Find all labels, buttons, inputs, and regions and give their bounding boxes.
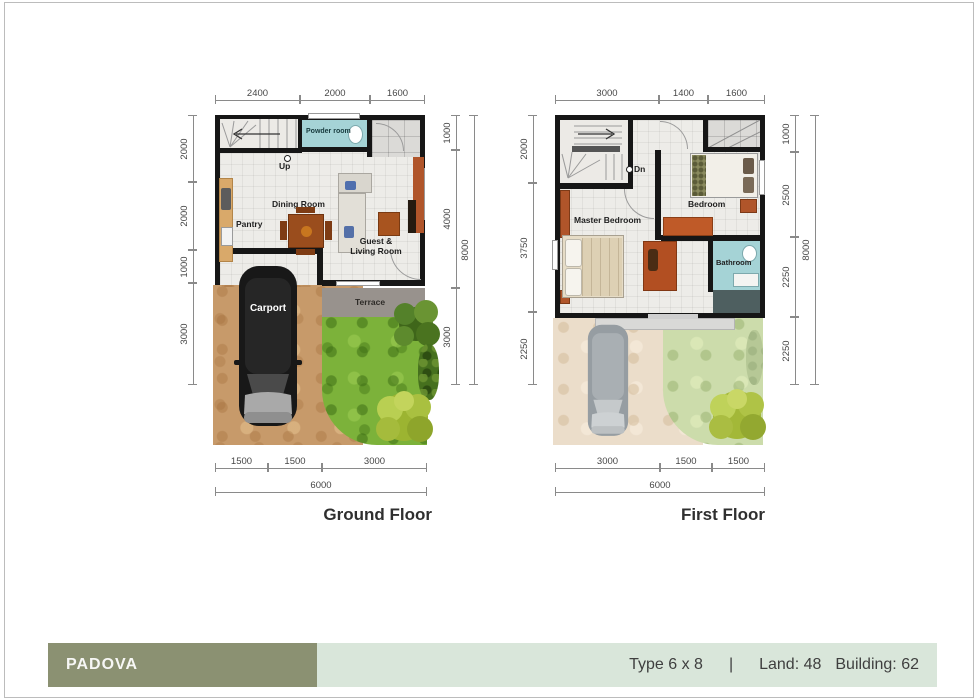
ff-wall-balcony-bottom (703, 147, 760, 152)
dim-value: 1000 (442, 111, 454, 155)
gf-dim-right-1: 4000 (444, 150, 457, 288)
gf-pantry-counter (219, 178, 233, 262)
dim-value: 8000 (801, 228, 813, 272)
project-name-plate: PADOVA (48, 643, 317, 687)
gf-centerpiece (301, 226, 312, 237)
dim-value: 2000 (179, 194, 191, 238)
dim-value: 2250 (519, 327, 531, 371)
gf-dim-bottom-1: 1500 (268, 456, 322, 469)
ff-master-pillow-1 (565, 239, 582, 267)
dim-value: 3000 (442, 315, 454, 359)
gf-dim-left-1: 2000 (181, 182, 194, 250)
ff-balcony-hatch (708, 120, 760, 148)
dim-value: 1500 (728, 456, 749, 467)
ff-wall-balcony-left (703, 115, 708, 151)
gf-chair-bottom (296, 249, 315, 255)
ff-dim-right-0: 1000 (783, 115, 796, 152)
gf-carport-label: Carport (240, 303, 296, 314)
gf-tv (408, 200, 416, 233)
dim-value: 2400 (247, 88, 268, 99)
dim-value: 1000 (179, 245, 191, 289)
dim-value: 1600 (387, 88, 408, 99)
gf-dim-right-0: 1000 (444, 115, 457, 150)
gf-wall-porch-left (367, 115, 372, 157)
ff-dim-top-0: 3000 (555, 88, 659, 101)
ff-dim-bottom-total: 6000 (555, 480, 765, 493)
dim-value: 1000 (781, 112, 793, 156)
ff-dim-right-total: 8000 (803, 115, 816, 385)
ff-bush-large (705, 385, 769, 445)
gf-dim-top-2: 1600 (370, 88, 425, 101)
gf-car-top-view (233, 262, 303, 432)
ff-vanity (733, 273, 759, 287)
ff-dim-right-3: 2250 (783, 317, 796, 385)
dim-value: 1500 (231, 456, 252, 467)
gf-dim-bottom-total: 6000 (215, 480, 427, 493)
ff-car-top-view-faded (575, 322, 641, 440)
gf-dim-bottom-0: 1500 (215, 456, 268, 469)
ff-dim-top-1: 1400 (659, 88, 708, 101)
floor-plan-sheet: Terrace Powder room (0, 0, 980, 700)
ff-wardrobe (560, 190, 570, 238)
gf-up-label: Up (279, 161, 290, 171)
gf-bush-mid (392, 294, 440, 352)
gf-window-top (308, 113, 360, 119)
project-name: PADOVA (48, 656, 138, 674)
ff-wall-hall (655, 150, 661, 240)
building-label: Building: 62 (835, 656, 919, 674)
dim-value: 4000 (442, 197, 454, 241)
dim-value: 2000 (519, 127, 531, 171)
ff-bathroom-label: Bathroom (716, 258, 751, 267)
dim-value: 3000 (179, 312, 191, 356)
ff-porch-step (648, 314, 698, 319)
ff-dim-bottom-2: 1500 (712, 456, 765, 469)
gf-sink (221, 227, 233, 246)
ff-bed-headboard (692, 155, 706, 196)
ff-master-pillow-2 (565, 268, 582, 296)
gf-pantry-label: Pantry (236, 219, 262, 229)
gf-wall-powder (298, 147, 370, 152)
ff-bed-pillow-1 (743, 158, 754, 174)
gf-dim-left-3: 3000 (181, 283, 194, 385)
dim-value: 6000 (310, 480, 331, 491)
gf-wall-powder-left (298, 115, 302, 152)
gf-dim-top-1: 2000 (300, 88, 370, 101)
ff-master-duvet (582, 238, 622, 296)
gf-terrace-label: Terrace (355, 297, 385, 307)
ff-window-right (759, 160, 765, 195)
gf-dim-left-2: 1000 (181, 250, 194, 283)
ff-dim-bottom-0: 3000 (555, 456, 660, 469)
gf-chair-left (280, 221, 287, 240)
ff-dim-top-2: 1600 (708, 88, 765, 101)
ff-dn-label: Dn (634, 164, 645, 174)
dim-value: 1400 (673, 88, 694, 99)
ff-stairs-graphic (560, 120, 628, 183)
type-label: Type 6 x 8 (629, 656, 703, 674)
dim-value: 2500 (781, 173, 793, 217)
gf-stove (221, 188, 231, 210)
ff-desk-chair (648, 249, 658, 271)
ff-dim-left-2: 2250 (521, 312, 534, 385)
project-info-plate: Type 6 x 8 | Land: 48 Building: 62 (317, 643, 937, 687)
gf-chair-top (296, 207, 315, 213)
dim-value: 1600 (726, 88, 747, 99)
ff-wall-stairs-right (628, 120, 633, 185)
dim-value: 2000 (179, 127, 191, 171)
dim-value: 8000 (460, 228, 472, 272)
dim-value: 3750 (519, 226, 531, 270)
dim-value: 3000 (596, 88, 617, 99)
dim-value: 2250 (781, 329, 793, 373)
dim-value: 2250 (781, 255, 793, 299)
ff-title: First Floor (615, 505, 765, 525)
ff-nightstand (740, 199, 757, 213)
gf-side-table (378, 212, 400, 236)
gf-powder-room-label: Powder room (306, 128, 351, 135)
gf-bush-large (372, 387, 436, 447)
ff-desk (663, 217, 713, 236)
ff-void-balcony (713, 290, 760, 313)
dim-value: 3000 (597, 456, 618, 467)
ff-wall-stairs-bottom (555, 183, 633, 189)
gf-title: Ground Floor (282, 505, 432, 525)
ff-dn-marker (626, 166, 633, 173)
gf-dim-right-2: 3000 (444, 288, 457, 385)
dim-value: 1500 (284, 456, 305, 467)
gf-wall-stairs (215, 148, 302, 153)
ff-dim-bottom-1: 1500 (660, 456, 712, 469)
dim-value: 2000 (324, 88, 345, 99)
gf-dim-left-0: 2000 (181, 115, 194, 182)
sheet-border (4, 2, 974, 698)
gf-stairs-graphic (220, 119, 300, 149)
ff-hedge-faded (746, 330, 763, 385)
gf-window-bottom (336, 281, 380, 286)
ff-dim-left-1: 3750 (521, 183, 534, 312)
separator: | (729, 656, 733, 674)
ff-window-left (552, 240, 558, 270)
gf-chair-right (325, 221, 332, 240)
gf-guest-living-label: Guest & Living Room (348, 236, 404, 256)
gf-dining-table (288, 214, 324, 248)
ff-bed-pillow-2 (743, 177, 754, 193)
dim-value: 3000 (364, 456, 385, 467)
ff-master-bedroom-label: Master Bedroom (574, 215, 641, 225)
dim-value: 1500 (675, 456, 696, 467)
gf-dim-top-0: 2400 (215, 88, 300, 101)
gf-dim-bottom-2: 3000 (322, 456, 427, 469)
ff-master-bed (562, 235, 624, 298)
ff-dim-right-2: 2250 (783, 237, 796, 317)
ff-bedroom-label: Bedroom (688, 199, 725, 209)
ff-bed (690, 153, 758, 198)
ff-dim-right-1: 2500 (783, 152, 796, 237)
gf-sofa-pillow-1 (345, 181, 356, 190)
gf-dim-right-total: 8000 (462, 115, 475, 385)
land-label: Land: 48 (759, 656, 821, 674)
ff-dim-left-0: 2000 (521, 115, 534, 183)
dim-value: 6000 (649, 480, 670, 491)
